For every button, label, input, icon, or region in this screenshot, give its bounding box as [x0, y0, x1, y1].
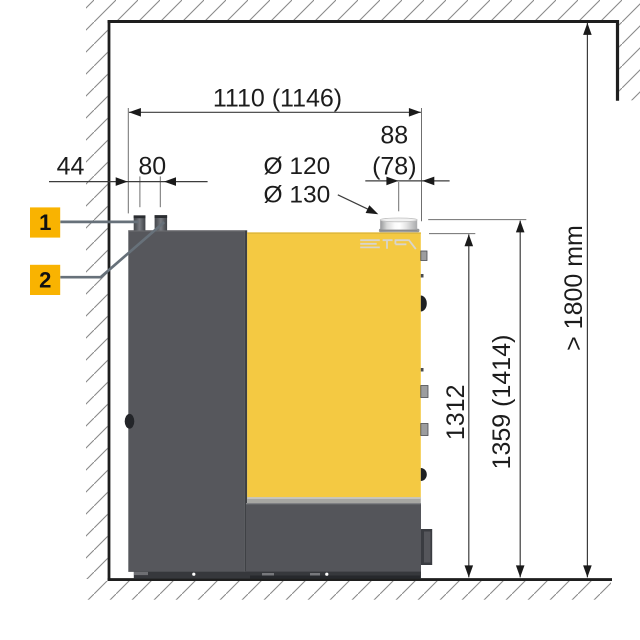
svg-text:> 1800 mm: > 1800 mm — [560, 225, 588, 351]
svg-text:80: 80 — [138, 153, 166, 181]
svg-text:1110 (1146): 1110 (1146) — [213, 85, 342, 113]
svg-text:1: 1 — [39, 210, 51, 235]
svg-text:88: 88 — [380, 121, 408, 149]
svg-text:1359 (1414): 1359 (1414) — [488, 335, 516, 470]
svg-text:Ø 120: Ø 120 — [264, 153, 331, 180]
svg-text:2: 2 — [39, 267, 51, 292]
svg-text:44: 44 — [57, 153, 85, 181]
svg-text:(78): (78) — [372, 153, 416, 181]
svg-text:1312: 1312 — [442, 384, 470, 440]
svg-text:Ø 130: Ø 130 — [264, 182, 331, 209]
